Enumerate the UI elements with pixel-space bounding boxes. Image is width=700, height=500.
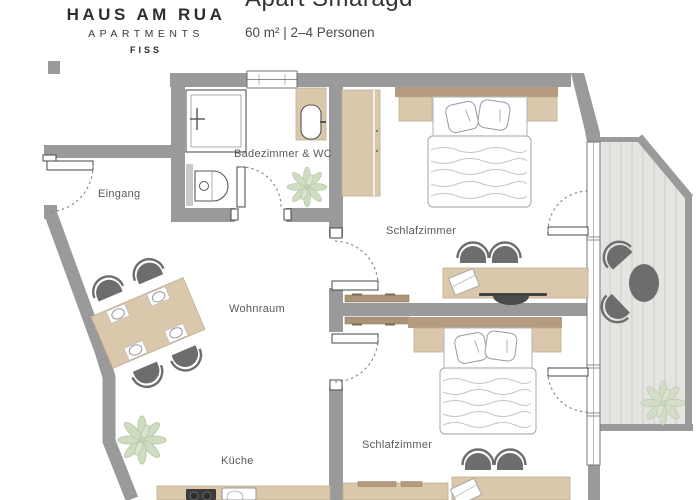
dining-chair [129,254,166,285]
bedroom2-door [330,334,378,390]
room-label-schlafzimmer1: Schlafzimmer [386,225,456,237]
sideboard [343,482,448,500]
dining-chair [88,272,125,303]
balcony-table [629,264,659,302]
nightstand [531,328,561,352]
balcony-railing-right [685,196,692,429]
wardrobe [342,90,380,196]
room-label-schlafzimmer2: Schlafzimmer [362,439,432,451]
desk-2 [450,450,570,500]
balcony-railing-top [597,137,641,142]
glass-front [587,142,600,465]
room-label-kueche: Küche [221,455,254,467]
plant-icon [287,167,327,207]
toilet [186,164,228,206]
desk-1 [443,243,588,306]
entry-door [43,155,93,212]
balcony-railing-bottom [597,424,693,431]
bedroom1-door [330,228,378,290]
balcony-door-2 [548,368,588,412]
dining-chair [131,361,168,392]
laptop [479,293,547,296]
desk-chair [495,450,526,471]
room-label-wohnraum: Wohnraum [229,303,285,315]
plant-icon [641,381,685,425]
room-label-eingang: Eingang [98,188,140,200]
double-bed-1 [395,87,558,207]
sideboard [345,294,409,303]
desk-chair [458,243,489,264]
kitchen-counter [157,486,330,500]
washbasin [296,88,326,140]
balcony [595,137,693,431]
bathroom-door [231,167,291,220]
floor-plan [0,0,700,500]
shower [186,90,246,152]
dining-chair [169,344,206,375]
sideboard [345,317,410,326]
desk-chair [463,450,494,471]
nightstand [414,328,444,352]
nightstand [524,97,557,121]
balcony-door-1 [548,191,588,235]
desk-chair [490,243,521,264]
plant-icon [118,416,166,464]
double-bed-2 [408,317,562,434]
bathroom-window [247,71,297,88]
room-label-badezimmer: Badezimmer & WC [234,148,332,160]
nightstand [399,97,432,121]
dining-set [79,249,218,398]
